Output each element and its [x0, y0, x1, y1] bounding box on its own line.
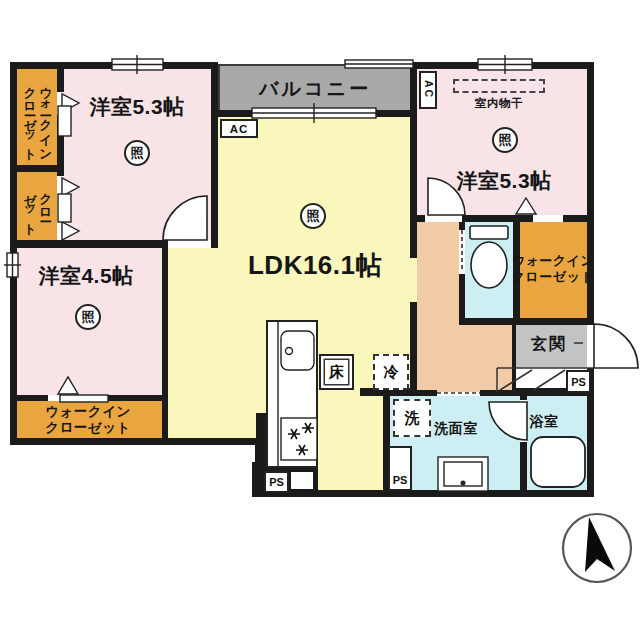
wall [162, 248, 168, 398]
washroom-label: 洗面室 [434, 420, 478, 437]
ac-box: AC [220, 119, 258, 138]
indoor-drying-rail [453, 79, 545, 93]
hallway [417, 222, 459, 335]
light-label: 照 [131, 144, 144, 162]
wall [10, 438, 262, 445]
room-toilet [465, 222, 513, 318]
light-icon: 照 [492, 127, 518, 153]
wall [10, 240, 168, 248]
light-label: 照 [499, 131, 512, 149]
ps-box: PS [264, 471, 289, 493]
wall [480, 390, 520, 396]
ps-box: PS [566, 370, 591, 393]
bedroom-nw-label: 洋室5.3帖 [89, 94, 184, 120]
wall [417, 390, 437, 396]
light-icon: 照 [300, 203, 326, 229]
wall [459, 274, 465, 318]
wall [10, 165, 64, 172]
wall [512, 325, 516, 392]
wall [10, 395, 48, 401]
wall [563, 215, 594, 222]
wall [410, 62, 417, 215]
refrigerator-label: 冷 [384, 363, 399, 382]
wall [162, 395, 168, 438]
bathroom-label: 浴室 [530, 413, 559, 430]
light-label: 照 [307, 207, 320, 225]
service-box [291, 472, 313, 489]
wall [410, 335, 417, 390]
wall [410, 215, 417, 258]
wall [462, 215, 533, 222]
wall [413, 62, 594, 69]
wall [376, 110, 413, 117]
wall [211, 62, 218, 248]
wall [587, 62, 594, 325]
compass-icon [563, 514, 631, 582]
ps-label: PS [269, 476, 284, 488]
balcony-label: バルコニー [259, 77, 371, 100]
room-bathroom [527, 396, 587, 490]
bedroom-w-label: 洋室4.5帖 [38, 263, 133, 289]
ac-label: AC [230, 123, 249, 135]
wall [459, 318, 594, 325]
refrigerator-box: 冷 [373, 354, 409, 390]
wall [459, 222, 465, 230]
wall [417, 215, 425, 222]
genkan-label: 玄関 [531, 334, 567, 354]
ac-label: AC [421, 80, 434, 99]
bedroom-ne-label: 洋室5.3帖 [456, 168, 551, 194]
indoor-drying-label: 室内物干 [475, 96, 523, 110]
closet-w-label: クロー ゼット [18, 176, 56, 238]
light-label: 照 [82, 308, 95, 326]
wic-e-label: ウォークイン クローゼット [512, 253, 595, 285]
wall [218, 110, 252, 117]
washer-box: 洗 [393, 399, 431, 437]
light-icon: 照 [124, 140, 150, 166]
wall [57, 69, 64, 92]
wall [10, 62, 17, 445]
wic-nw-label: ウォークイン クローゼット [18, 72, 56, 162]
ldk-label: LDK16.1帖 [248, 250, 382, 282]
wall [520, 442, 527, 497]
ps-label: PS [393, 474, 408, 486]
kitchen-counter [266, 320, 318, 468]
washer-label: 洗 [405, 409, 420, 428]
light-icon: 照 [75, 304, 101, 330]
wall [90, 395, 168, 401]
hallway [417, 325, 512, 392]
floor-storage-box: 床 [319, 354, 354, 390]
ps-box: PS [388, 446, 412, 491]
wall [10, 62, 218, 69]
wic-sw-label: ウォークイン クローゼット [45, 404, 131, 437]
wall [410, 302, 417, 335]
floor-plan: PS PS PS AC AC 床 冷 洗 照 照 照 照 バルコニー 洋室5.3… [0, 0, 640, 640]
ps-label: PS [571, 376, 586, 388]
floor-storage-label: 床 [329, 363, 344, 382]
ac-box: AC [419, 71, 437, 109]
